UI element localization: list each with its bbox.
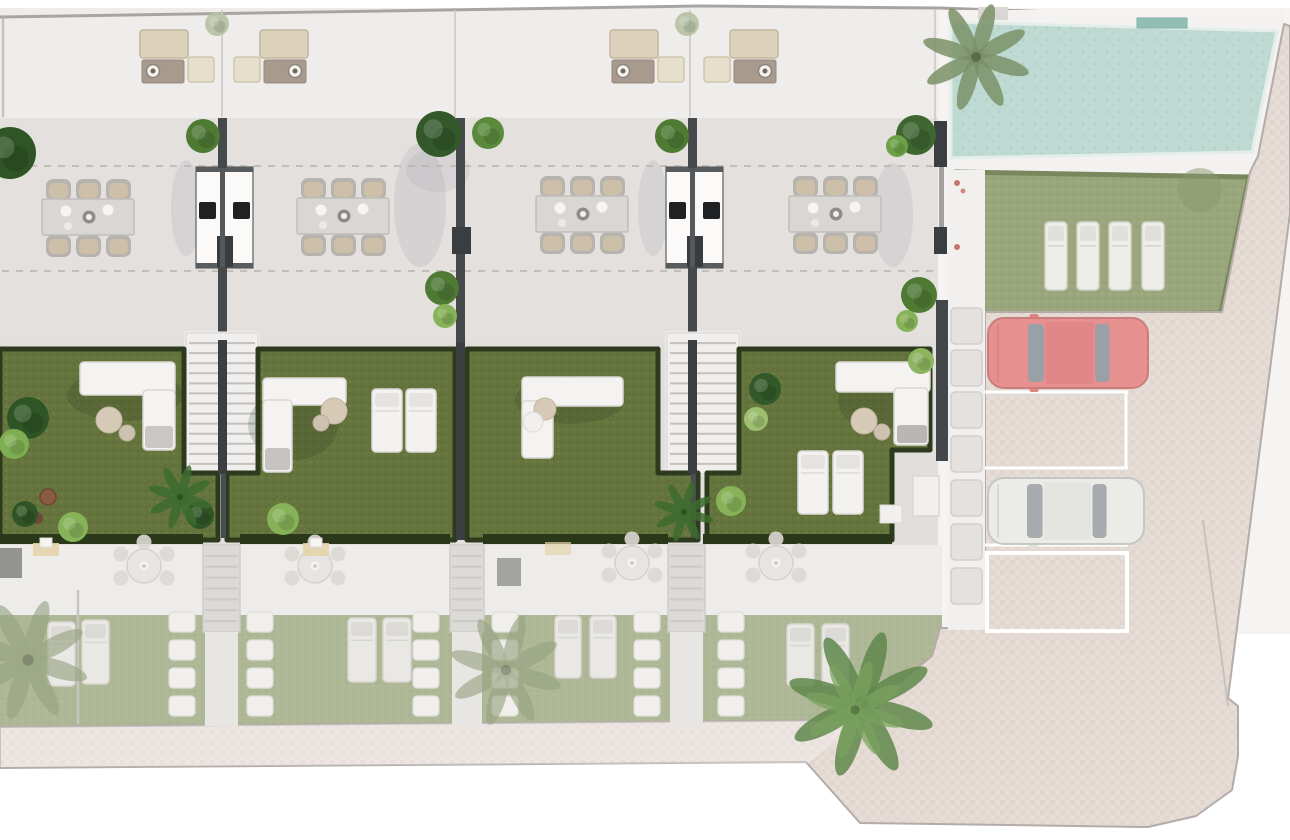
flower [961, 189, 966, 194]
garden-plant [267, 503, 299, 535]
cooktop [669, 202, 686, 219]
walkway-slab [951, 524, 982, 560]
garden-plant [744, 407, 768, 431]
party-wall [688, 267, 697, 342]
ac-unit [913, 476, 939, 516]
ghost-stairs [668, 545, 705, 632]
tree [655, 119, 689, 153]
sofa-chaise [145, 426, 173, 448]
wall-chimney [452, 227, 471, 254]
ghost-lounger [383, 618, 411, 682]
tree [186, 119, 220, 153]
ghost-tree [675, 12, 699, 36]
pouf [851, 408, 877, 434]
party-wall [220, 168, 225, 267]
hedge [483, 534, 668, 544]
fire-pit [40, 489, 56, 505]
ghost-path [670, 632, 703, 726]
ghost-stairs [450, 545, 484, 632]
ac-unit [880, 505, 902, 523]
in-pool-lounger [1137, 18, 1187, 28]
ghost-stairs [203, 545, 240, 632]
ghost-lounger [82, 620, 109, 684]
hedge [240, 534, 450, 544]
walkway-slab [951, 436, 982, 472]
garden-lounger [833, 451, 863, 514]
cooktop [233, 202, 250, 219]
garden-plant [0, 429, 29, 459]
ghost-bbq [0, 548, 22, 578]
hedge [703, 534, 892, 544]
garden-plant [749, 373, 781, 405]
pouf [523, 412, 543, 432]
roof-sink-dot [151, 69, 156, 74]
solarium-band [0, 8, 938, 118]
tree [472, 117, 504, 149]
hedge [0, 534, 203, 544]
roof-sink-dot [293, 69, 298, 74]
outdoor-dining-set [789, 176, 881, 254]
bush [901, 277, 937, 313]
ghost-lounger [590, 616, 616, 678]
flower [954, 180, 960, 186]
roof-sofa [140, 30, 188, 58]
roof-armchair [704, 57, 730, 82]
ghost-lounger [555, 616, 581, 678]
party-wall [456, 342, 465, 540]
walkway-slab [951, 308, 982, 344]
ghost-bbq [497, 558, 521, 586]
ghost-lounger [787, 624, 814, 686]
ghost-mat [545, 542, 571, 555]
party-wall [218, 118, 227, 168]
walkway-slab [951, 350, 982, 386]
bush [433, 304, 457, 328]
garden-plant [58, 512, 88, 542]
party-wall [936, 300, 948, 461]
tree [886, 135, 908, 157]
walkway-slab [951, 568, 982, 604]
lawn-lounger [1142, 222, 1164, 290]
walkway-slab [951, 480, 982, 516]
party-wall [934, 121, 947, 167]
red-car [988, 314, 1148, 392]
party-wall [218, 267, 227, 342]
pouf [313, 415, 329, 431]
party-wall [690, 168, 695, 267]
white-car [988, 474, 1144, 548]
site-plan-svg [0, 0, 1290, 840]
wall-chimney [934, 227, 947, 254]
sofa-chaise [897, 425, 927, 443]
garden-lounger [372, 389, 402, 452]
ghost-lounger [348, 618, 376, 682]
ghost-box [310, 538, 322, 547]
shadow [638, 160, 668, 256]
lawn-lounger [1045, 222, 1067, 290]
garden-lounger [406, 389, 436, 452]
roof-sofa [610, 30, 658, 58]
flower [954, 244, 960, 250]
outdoor-dining-set [42, 179, 134, 257]
roof-sofa [260, 30, 308, 58]
sofa-chaise [265, 448, 290, 470]
outdoor-dining-set [297, 178, 389, 256]
cooktop [199, 202, 216, 219]
bush [896, 310, 918, 332]
ghost-box [40, 538, 52, 547]
garden-lounger [798, 451, 828, 514]
pouf [119, 425, 135, 441]
walkway-slab [951, 392, 982, 428]
ghost-tree [205, 12, 229, 36]
roof-armchair [188, 57, 214, 82]
garden-plant [716, 486, 746, 516]
cooktop [703, 202, 720, 219]
lawn-lounger [1077, 222, 1099, 290]
lawn-lounger [1109, 222, 1131, 290]
tree [416, 111, 462, 157]
ghost-path [205, 632, 238, 726]
party-wall [688, 340, 697, 474]
garden-plant [908, 348, 934, 374]
pouf [96, 407, 122, 433]
party-wall [218, 340, 227, 474]
bush [425, 271, 459, 305]
roof-sink-dot [621, 69, 626, 74]
walkway-fade [0, 720, 865, 767]
pouf [874, 424, 890, 440]
outdoor-dining-set [536, 176, 628, 254]
roof-armchair [658, 57, 684, 82]
roof-sofa [730, 30, 778, 58]
party-wall [688, 118, 697, 168]
roof-sink-dot [763, 69, 768, 74]
garden-plant [12, 501, 38, 527]
ghost-tree [1178, 168, 1222, 212]
party-wall-light [939, 167, 944, 227]
party-wall [221, 474, 226, 538]
garden-stairs [667, 333, 739, 474]
site-plan-canvas [0, 0, 1290, 840]
roof-armchair [234, 57, 260, 82]
